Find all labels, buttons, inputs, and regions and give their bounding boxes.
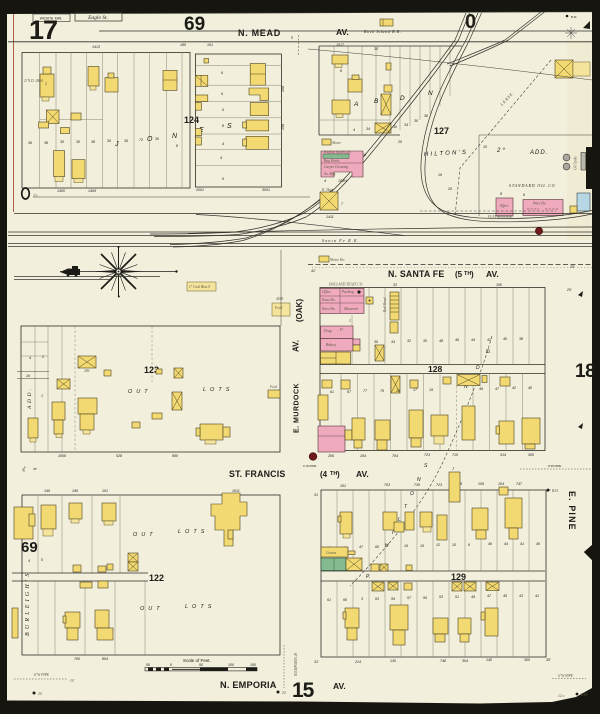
svg-text:OUT: OUT xyxy=(128,389,152,395)
svg-text:38: 38 xyxy=(44,141,48,145)
svg-text:195: 195 xyxy=(72,489,78,493)
svg-text:K. Ha.: K. Ha. xyxy=(321,188,332,192)
svg-text:Santa Fe R.R.: Santa Fe R.R. xyxy=(322,238,360,243)
svg-text:42: 42 xyxy=(512,386,516,390)
svg-text:128: 128 xyxy=(428,364,442,374)
svg-text:OUT: OUT xyxy=(133,532,157,538)
svg-text:2½: 2½ xyxy=(33,194,38,198)
svg-text:8: 8 xyxy=(176,144,178,148)
svg-text:): ) xyxy=(337,470,340,479)
svg-text:69: 69 xyxy=(184,14,205,35)
svg-text:748: 748 xyxy=(440,659,446,663)
svg-text:J: J xyxy=(452,466,454,471)
svg-text:43: 43 xyxy=(519,594,523,598)
svg-text:Scale of Feet.: Scale of Feet. xyxy=(183,658,211,663)
svg-text:AV.: AV. xyxy=(292,340,301,352)
svg-text:704: 704 xyxy=(392,454,398,458)
svg-text:6: 6 xyxy=(222,108,224,112)
svg-text:AV.: AV. xyxy=(356,469,369,479)
svg-text:4: 4 xyxy=(353,128,355,132)
svg-text:19: 19 xyxy=(429,388,433,392)
svg-text:Wichita Steam Ldy: Wichita Steam Ldy xyxy=(324,151,351,155)
svg-text:40: 40 xyxy=(503,337,507,341)
svg-text:N. SANTA FE: N. SANTA FE xyxy=(388,269,444,279)
svg-text:6: 6 xyxy=(221,71,223,75)
svg-text:10: 10 xyxy=(483,145,487,149)
svg-text:Contra: Contra xyxy=(326,551,336,555)
svg-text:130: 130 xyxy=(390,659,396,663)
svg-text:1017: 1017 xyxy=(336,43,345,47)
svg-text:804: 804 xyxy=(102,657,108,661)
svg-text:4: 4 xyxy=(28,559,30,563)
svg-text:Oil Tanks: Oil Tanks xyxy=(574,156,578,170)
svg-text:4: 4 xyxy=(222,142,224,146)
svg-text:10: 10 xyxy=(452,543,456,547)
svg-text:38: 38 xyxy=(519,337,523,341)
svg-text:17: 17 xyxy=(29,15,57,45)
svg-text:124: 124 xyxy=(184,115,199,125)
svg-text:6: 6 xyxy=(523,193,525,197)
svg-text:1011: 1011 xyxy=(232,489,240,493)
svg-text:31: 31 xyxy=(314,493,318,497)
svg-text:104: 104 xyxy=(498,482,504,486)
svg-text:206: 206 xyxy=(327,454,334,458)
svg-text:Eagle St.: Eagle St. xyxy=(87,15,108,21)
svg-text:13: 13 xyxy=(396,389,400,393)
svg-text:150: 150 xyxy=(281,86,285,92)
svg-text:9: 9 xyxy=(468,543,470,547)
svg-text:1413: 1413 xyxy=(92,45,100,49)
svg-text:LOTS: LOTS xyxy=(203,387,233,393)
svg-text:60: 60 xyxy=(375,545,379,549)
svg-text:38: 38 xyxy=(91,140,95,144)
svg-text:C.W.PIPE: C.W.PIPE xyxy=(303,464,317,468)
svg-text:100: 100 xyxy=(496,283,502,287)
svg-text:ST. FRANCIS: ST. FRANCIS xyxy=(229,469,285,479)
svg-text:D: D xyxy=(400,95,405,102)
svg-text:48: 48 xyxy=(439,339,443,343)
svg-text:4449: 4449 xyxy=(276,297,283,301)
svg-text:36: 36 xyxy=(374,340,378,344)
svg-text:16: 16 xyxy=(404,544,408,548)
svg-text:723: 723 xyxy=(424,453,430,457)
svg-text:101: 101 xyxy=(102,489,108,493)
svg-text:723: 723 xyxy=(436,483,442,487)
svg-text:LOTS: LOTS xyxy=(185,604,215,610)
svg-text:34: 34 xyxy=(366,127,370,131)
svg-text:150: 150 xyxy=(281,124,285,130)
svg-text:41: 41 xyxy=(535,594,539,598)
svg-text:747: 747 xyxy=(516,482,523,486)
svg-text:304: 304 xyxy=(462,659,468,663)
svg-text:J: J xyxy=(114,141,119,148)
svg-text:140: 140 xyxy=(486,658,492,662)
svg-text:34: 34 xyxy=(391,340,395,344)
svg-text:3: 3 xyxy=(361,597,363,601)
svg-text:1: 1 xyxy=(41,394,43,398)
svg-text:HOLLAND YEAST CO: HOLLAND YEAST CO xyxy=(328,283,363,287)
svg-text:49: 49 xyxy=(471,595,475,599)
svg-text:O: O xyxy=(147,136,153,143)
svg-text:30: 30 xyxy=(60,140,64,144)
svg-text:2: 2 xyxy=(41,355,44,359)
svg-text:AV.: AV. xyxy=(333,681,346,691)
svg-text:300: 300 xyxy=(528,453,534,457)
svg-text:6: 6 xyxy=(222,177,224,181)
svg-text:B.H.: B.H. xyxy=(552,489,559,493)
svg-text:STANDARD OIL CO: STANDARD OIL CO xyxy=(509,183,555,188)
svg-text:ADD.: ADD. xyxy=(529,150,548,156)
svg-text:30: 30 xyxy=(76,140,80,144)
svg-text:4: 4 xyxy=(29,356,31,360)
svg-text:1400: 1400 xyxy=(57,189,65,193)
svg-text:101: 101 xyxy=(340,484,346,488)
svg-text:N. EMPORIA: N. EMPORIA xyxy=(220,680,277,690)
svg-text:15: 15 xyxy=(292,679,315,702)
svg-text:Rock Island R.R.: Rock Island R.R. xyxy=(363,29,402,34)
svg-text:2º: 2º xyxy=(496,147,507,154)
svg-text:50: 50 xyxy=(199,663,203,667)
svg-text:A: A xyxy=(353,101,358,108)
svg-text:149: 149 xyxy=(44,489,50,493)
svg-text:H: H xyxy=(385,543,389,549)
svg-text:5: 5 xyxy=(291,35,293,40)
svg-text:6"W PIPE: 6"W PIPE xyxy=(548,464,562,468)
svg-text:1411: 1411 xyxy=(326,215,334,219)
svg-text:60: 60 xyxy=(343,598,347,602)
svg-text:45: 45 xyxy=(503,594,507,598)
svg-text:D.: D. xyxy=(486,349,491,355)
svg-text:8: 8 xyxy=(222,124,224,128)
svg-text:36: 36 xyxy=(424,114,428,118)
svg-text:1° Coal Bins 9: 1° Coal Bins 9 xyxy=(189,285,210,289)
svg-text:100: 100 xyxy=(228,663,234,667)
svg-text:104: 104 xyxy=(360,454,366,458)
svg-text:30: 30 xyxy=(423,339,427,343)
svg-text:So. Mfg.: So. Mfg. xyxy=(324,172,336,176)
svg-text:72: 72 xyxy=(139,138,143,142)
svg-text:D: D xyxy=(476,365,480,371)
svg-text:Yeast Ho.: Yeast Ho. xyxy=(322,298,336,302)
svg-text:12 o: 12 o xyxy=(558,694,564,698)
svg-text:286: 286 xyxy=(84,369,90,373)
svg-text:O: O xyxy=(410,491,414,497)
svg-text:36: 36 xyxy=(28,141,32,145)
svg-text:63: 63 xyxy=(375,597,379,601)
svg-text:109: 109 xyxy=(478,482,484,486)
svg-text:41: 41 xyxy=(520,542,524,546)
svg-text:(5: (5 xyxy=(455,270,463,279)
svg-text:46: 46 xyxy=(455,338,459,342)
svg-text:185: 185 xyxy=(180,43,186,47)
svg-text:N. MEAD: N. MEAD xyxy=(238,28,281,38)
svg-text:16: 16 xyxy=(26,374,30,378)
svg-text:3001: 3001 xyxy=(262,188,270,192)
svg-text:N: N xyxy=(428,90,433,97)
svg-text:59: 59 xyxy=(391,597,395,601)
svg-text:(OAK): (OAK) xyxy=(295,299,304,322)
svg-text:6"W PIPE: 6"W PIPE xyxy=(34,673,50,677)
svg-text:40: 40 xyxy=(536,542,540,546)
svg-text:50: 50 xyxy=(146,663,150,667)
svg-text:33: 33 xyxy=(393,283,397,287)
svg-text:Ware Ho.: Ware Ho. xyxy=(322,307,336,311)
svg-text:300: 300 xyxy=(524,658,530,662)
svg-text:30': 30' xyxy=(374,47,379,51)
svg-text:30: 30 xyxy=(414,119,418,123)
svg-text:Packing: Packing xyxy=(341,290,354,294)
svg-text:(4: (4 xyxy=(320,470,328,479)
svg-text:36: 36 xyxy=(107,139,111,143)
svg-text:Ware Ho.: Ware Ho. xyxy=(533,202,547,206)
svg-text:Rail Road: Rail Road xyxy=(383,297,387,313)
svg-text:34: 34 xyxy=(404,123,408,127)
svg-text:49: 49 xyxy=(479,387,483,391)
svg-text:700: 700 xyxy=(74,657,80,661)
svg-text:101: 101 xyxy=(207,43,213,47)
svg-text:4: 4 xyxy=(220,156,222,160)
svg-text:Office: Office xyxy=(322,290,331,294)
svg-text:FLAT IRON R.R.: FLAT IRON R.R. xyxy=(487,215,513,219)
svg-text:2: 2 xyxy=(45,82,47,86)
svg-text:25': 25' xyxy=(566,288,572,292)
svg-text:528: 528 xyxy=(116,454,122,458)
svg-text:314: 314 xyxy=(500,453,506,457)
svg-text:Drug: Drug xyxy=(323,329,332,333)
svg-text:45': 45' xyxy=(33,467,37,471)
svg-text:129: 129 xyxy=(451,572,466,582)
svg-text:4: 4 xyxy=(324,179,326,183)
svg-text:P.: P. xyxy=(366,574,370,580)
svg-text:S: S xyxy=(227,123,232,130)
svg-text:30: 30 xyxy=(155,137,159,141)
svg-text:69: 69 xyxy=(21,539,38,556)
svg-text:20: 20 xyxy=(38,692,42,696)
svg-text:40: 40 xyxy=(528,386,532,390)
svg-text:ADD.: ADD. xyxy=(27,386,33,410)
svg-text:2?'S.D. 2804: 2?'S.D. 2804 xyxy=(24,79,43,83)
svg-text:Motor: Motor xyxy=(331,141,342,145)
svg-text:B.H.: B.H. xyxy=(581,693,588,697)
svg-text:55: 55 xyxy=(423,596,427,600)
svg-text:61: 61 xyxy=(327,598,331,602)
svg-text:20: 20 xyxy=(447,187,452,191)
svg-text:Office: Office xyxy=(500,204,509,208)
svg-text:53: 53 xyxy=(439,595,443,599)
svg-text:5: 5 xyxy=(41,558,43,562)
svg-text:E. PINE: E. PINE xyxy=(567,491,577,531)
svg-text:20: 20 xyxy=(397,140,402,144)
svg-text:25': 25' xyxy=(569,265,575,269)
svg-text:LOTS: LOTS xyxy=(178,529,208,535)
svg-text:AV.: AV. xyxy=(486,269,499,279)
svg-text:2: 2 xyxy=(349,319,351,323)
svg-text:41': 41' xyxy=(311,269,316,273)
svg-text:127: 127 xyxy=(434,126,449,136)
svg-text:Bag Works: Bag Works xyxy=(324,159,340,163)
svg-text:103½: 103½ xyxy=(338,179,347,183)
svg-text:Feed: Feed xyxy=(269,385,277,389)
svg-text:710: 710 xyxy=(452,453,458,457)
svg-text:122: 122 xyxy=(149,573,164,583)
svg-text:1006: 1006 xyxy=(58,454,66,458)
svg-text:16: 16 xyxy=(438,173,442,177)
svg-text:6"W PIPE: 6"W PIPE xyxy=(558,674,574,678)
svg-text:Macaroni: Macaroni xyxy=(343,307,358,311)
svg-text:51: 51 xyxy=(455,595,459,599)
svg-text:75: 75 xyxy=(380,389,384,393)
svg-text:35': 35' xyxy=(546,658,551,662)
svg-text:1406: 1406 xyxy=(88,189,96,193)
svg-text:AV.: AV. xyxy=(336,27,349,37)
svg-text:61: 61 xyxy=(330,390,334,394)
svg-text:36: 36 xyxy=(124,139,128,143)
svg-text:20: 20 xyxy=(282,691,286,695)
svg-text:18: 18 xyxy=(575,361,595,382)
svg-text:42: 42 xyxy=(487,338,491,342)
svg-text:703: 703 xyxy=(384,483,390,487)
svg-text:Bakery: Bakery xyxy=(326,343,337,347)
svg-text:0: 0 xyxy=(170,663,172,667)
svg-text:): ) xyxy=(471,270,474,279)
svg-text:Carpet Cleaning: Carpet Cleaning xyxy=(324,165,348,169)
svg-text:B.M: B.M xyxy=(571,15,577,19)
svg-text:150: 150 xyxy=(250,663,256,667)
svg-text:10': 10' xyxy=(70,679,75,683)
svg-text:OUT: OUT xyxy=(140,606,164,612)
svg-text:12: 12 xyxy=(436,543,440,547)
svg-text:2001: 2001 xyxy=(195,188,204,192)
svg-text:15: 15 xyxy=(420,544,424,548)
svg-text:44: 44 xyxy=(471,338,475,342)
svg-text:46: 46 xyxy=(488,542,492,546)
svg-text:44: 44 xyxy=(504,542,508,546)
svg-text:N.EMPORIA 26: N.EMPORIA 26 xyxy=(294,653,298,677)
svg-text:850: 850 xyxy=(172,454,178,458)
svg-text:32: 32 xyxy=(407,339,411,343)
svg-text:31': 31' xyxy=(314,660,319,664)
svg-text:8: 8 xyxy=(340,69,342,73)
svg-text:6: 6 xyxy=(221,92,223,96)
svg-text:730: 730 xyxy=(414,483,420,487)
svg-text:BURLEIGH'S: BURLEIGH'S xyxy=(25,570,31,636)
svg-text:Motor Ho.: Motor Ho. xyxy=(329,258,345,262)
svg-text:E. MURDOCK: E. MURDOCK xyxy=(294,383,301,433)
svg-text:214: 214 xyxy=(354,660,361,664)
svg-text:8: 8 xyxy=(500,192,502,196)
svg-text:B: B xyxy=(374,98,379,105)
